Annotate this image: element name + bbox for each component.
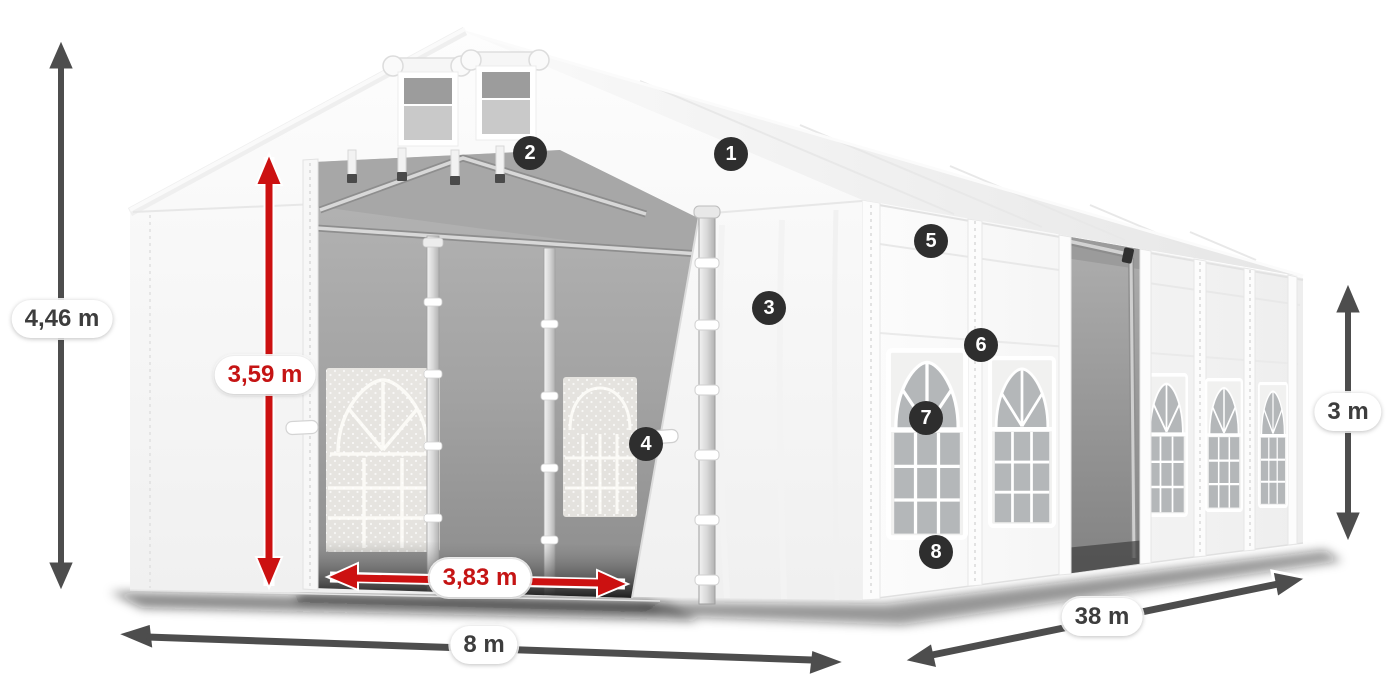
callout-badge-6[interactable]: 6 — [964, 328, 998, 362]
callout-badge-2[interactable]: 2 — [513, 136, 547, 170]
entrance-width-label: 3,83 m — [430, 559, 531, 597]
tent-illustration — [0, 0, 1400, 700]
door-tie-strap — [286, 420, 319, 435]
callout-badge-7[interactable]: 7 — [909, 401, 943, 435]
width-label: 8 m — [450, 626, 517, 664]
side-wall-opening — [1065, 236, 1145, 574]
callout-badge-4[interactable]: 4 — [629, 427, 663, 461]
callout-badge-3[interactable]: 3 — [752, 291, 786, 325]
callout-badge-8[interactable]: 8 — [919, 535, 953, 569]
interior-window-right — [563, 377, 637, 517]
total-height-label: 4,46 m — [12, 300, 113, 338]
tent-dimension-diagram: 4,46 m 3,59 m 3,83 m 8 m 38 m 3 m 1 2 3 … — [0, 0, 1400, 700]
callout-badge-5[interactable]: 5 — [914, 224, 948, 258]
callout-badge-1[interactable]: 1 — [714, 137, 748, 171]
length-label: 38 m — [1062, 598, 1143, 636]
side-height-label: 3 m — [1314, 393, 1381, 431]
inner-height-label: 3,59 m — [215, 356, 316, 394]
interior-window-left — [326, 368, 440, 552]
